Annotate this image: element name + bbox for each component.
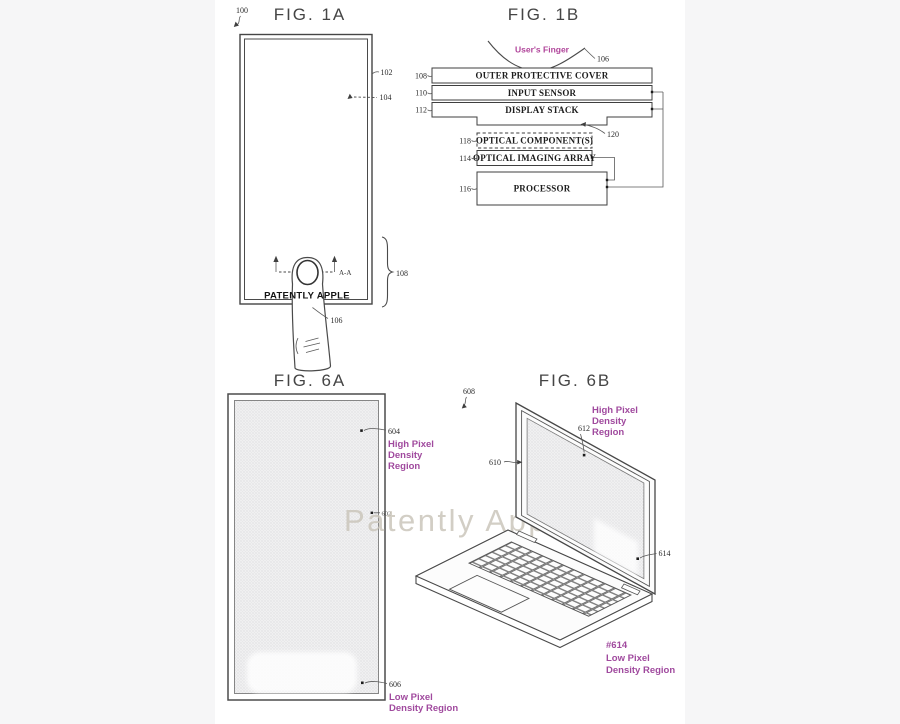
ref-614-dot [636, 557, 639, 560]
optical-imaging-array-label: OPTICAL IMAGING ARRAY [473, 153, 596, 163]
user-finger-label: User's Finger [515, 45, 570, 55]
low-density-region-shape [247, 652, 357, 693]
fig-6b-ref-608: 608 [463, 387, 475, 396]
ref-612-dot [583, 454, 586, 457]
ref-604-dot [360, 429, 363, 432]
low-density-label-6b-line1: Low Pixel [606, 653, 650, 664]
fig-1a-ref-106: 106 [331, 316, 343, 325]
connector-dot [606, 179, 608, 181]
input-sensor-label: INPUT SENSOR [508, 88, 577, 98]
ref-606-dot [361, 682, 364, 685]
connector-dot [651, 91, 653, 93]
high-density-label-line3: Region [388, 461, 420, 472]
fig-1a-ref-100: 100 [236, 6, 248, 15]
low-density-label-6b-line2: Density Region [606, 665, 675, 676]
processor-label: PROCESSOR [514, 184, 571, 194]
high-density-label-line1: High Pixel [388, 439, 434, 450]
display-stack-label: DISPLAY STACK [505, 105, 579, 115]
fig-6a-title: FIG. 6A [274, 371, 347, 390]
patent-figure-page: FIG. 1A 100 A-A PATENTLY APPLE 102 104 1… [0, 0, 900, 724]
high-density-label-6b-line3: Region [592, 427, 624, 438]
fig-1b-ref-108: 108 [415, 71, 427, 80]
high-density-label-line2: Density [388, 450, 423, 461]
fig-1b-ref-106: 106 [597, 55, 609, 64]
connector-dot [606, 186, 608, 188]
fig-6a-ref-604: 604 [388, 427, 400, 436]
optical-components-label: OPTICAL COMPONENT(S) [476, 136, 593, 146]
fig-1b-ref-118: 118 [459, 136, 471, 145]
patent-drawing-canvas: FIG. 1A 100 A-A PATENTLY APPLE 102 104 1… [0, 0, 900, 724]
low-density-ref-tag: #614 [606, 640, 628, 651]
fig-1a-ref-108: 108 [396, 269, 408, 278]
outer-protective-cover-label: OUTER PROTECTIVE COVER [476, 71, 609, 81]
low-density-label-line1: Low Pixel [389, 692, 433, 703]
fig-1b-ref-112: 112 [415, 106, 427, 115]
patently-apple-stamp: PATENTLY APPLE [264, 291, 350, 302]
connector-dot [591, 156, 593, 158]
fig-6a-ref-606: 606 [389, 680, 401, 689]
fig-1a-ref-104: 104 [380, 93, 392, 102]
fig-6b-ref-614: 614 [659, 549, 671, 558]
fig-6b-ref-610: 610 [489, 458, 501, 467]
fig-6b-title: FIG. 6B [539, 371, 612, 390]
high-density-pixel-area [235, 401, 379, 694]
fig-1b-title: FIG. 1B [508, 5, 581, 24]
section-label: A-A [339, 269, 351, 277]
low-density-label-line2: Density Region [389, 703, 458, 714]
high-density-label-6b-line2: Density [592, 416, 627, 427]
connector-dot [651, 108, 653, 110]
fig-6b-ref-612: 612 [578, 424, 590, 433]
fig-1b-ref-116: 116 [459, 184, 471, 193]
fig-1a-title: FIG. 1A [274, 5, 347, 24]
fig-1b-ref-120: 120 [607, 130, 619, 139]
high-density-label-6b-line1: High Pixel [592, 405, 638, 416]
fig-1b-ref-114: 114 [459, 154, 471, 163]
fig-1a-ref-102: 102 [381, 68, 393, 77]
fig-1b-ref-110: 110 [415, 89, 427, 98]
